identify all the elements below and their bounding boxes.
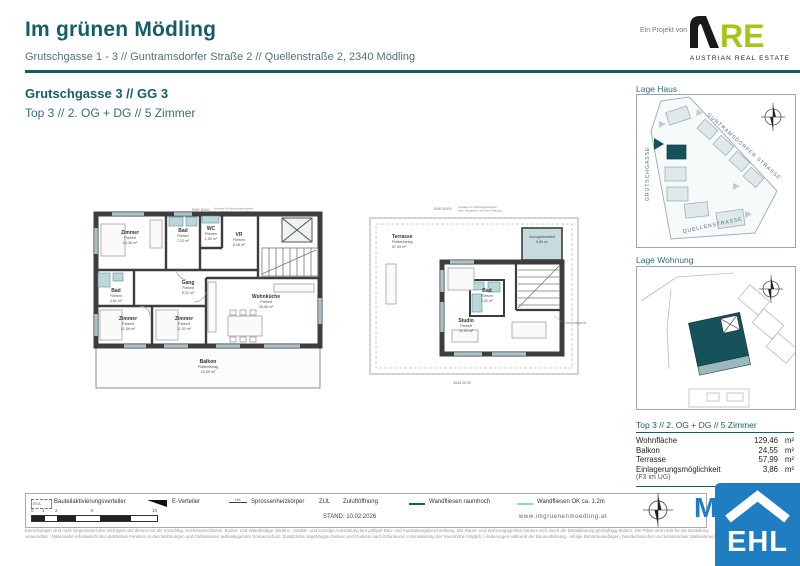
zul-abbr: ZUL (319, 499, 330, 505)
are-mark-icon (690, 16, 719, 48)
row-value: 57,99 (738, 455, 778, 465)
table-row: Terrasse 57,99 m² (636, 455, 794, 465)
svg-text:Parkett: Parkett (124, 236, 136, 240)
wandfliesen-raumhoch-label: Wandfliesen raumhoch (429, 499, 490, 505)
page-title: Im grünen Mödling (25, 18, 216, 42)
scale-tick: 1 (42, 508, 45, 513)
row-value: 24,55 (738, 446, 778, 456)
scale-bar (31, 515, 158, 522)
svg-text:32,93 m²: 32,93 m² (459, 329, 474, 333)
og-elevator (282, 218, 312, 242)
row-unit: m² (778, 465, 794, 475)
svg-text:28,08 m²: 28,08 m² (259, 305, 274, 309)
row-label: Einlagerungsmöglichkeit (636, 465, 738, 475)
svg-text:24,55 m²: 24,55 m² (201, 370, 216, 374)
wandfliesen-raumhoch-icon (409, 503, 425, 505)
row-label: Balkon (636, 446, 738, 456)
scale-tick: 0 (31, 508, 34, 513)
are-logo: RE AUSTRIAN REAL ESTATE (688, 14, 794, 69)
svg-text:Fliesen: Fliesen (481, 294, 493, 298)
ehl-roof-icon (715, 483, 800, 525)
heizkoerper-icon: HK (229, 497, 247, 503)
table-row: Balkon 24,55 m² (636, 446, 794, 456)
svg-text:Fliesen: Fliesen (110, 294, 122, 298)
table-header: Top 3 // 2. OG + DG // 5 Zimmer (636, 420, 794, 430)
ehl-logo: EHL (715, 483, 800, 566)
table-divider-top (636, 432, 794, 433)
lage-haus-label: Lage Haus (636, 84, 677, 94)
heizkoerper-label: Sprossenheizkörper (251, 499, 304, 505)
svg-text:9,32 m²: 9,32 m² (182, 291, 195, 295)
svg-text:Parkett: Parkett (122, 322, 134, 326)
svg-text:11,88 m²: 11,88 m² (121, 327, 136, 331)
e-verteiler-icon (147, 500, 167, 507)
wandfliesen-ok-label: Wandfliesen OK ca. 1.2m (537, 499, 605, 505)
svg-text:4,81 m²: 4,81 m² (110, 299, 123, 303)
scale-tick: 5 (91, 508, 94, 513)
lage-haus-map: GUNTRAMSDORFER STRASSE GRUTSCHGASSE QUEL… (636, 94, 796, 248)
svg-text:Parkett: Parkett (460, 324, 472, 328)
wandfliesen-ok-icon (517, 503, 533, 505)
street-grutschgasse: GRUTSCHGASSE (645, 147, 651, 201)
website-link[interactable]: www.imgruenenmoedling.at (519, 514, 607, 520)
table-row: Einlagerungsmöglichkeit 3,86 m² (636, 465, 794, 475)
e-verteiler-label: E-Verteiler (172, 499, 200, 505)
lage-haus-graphic: GUNTRAMSDORFER STRASSE GRUTSCHGASSE QUEL… (637, 95, 795, 247)
stand-date: STAND: 10.02.2026 (323, 514, 376, 520)
page-subtitle: Grutschgasse 1 - 3 // Guntramsdorfer Str… (25, 51, 415, 63)
svg-text:Fliesen: Fliesen (205, 232, 217, 236)
svg-text:Fliesen: Fliesen (177, 234, 189, 238)
svg-text:Plattenbelag: Plattenbelag (198, 365, 219, 369)
lage-wohnung-label: Lage Wohnung (636, 255, 694, 265)
svg-text:Fliesen: Fliesen (233, 238, 245, 242)
svg-text:1,50 m²: 1,50 m² (205, 237, 218, 241)
dg-note-line2: über Steigleiter mit fixer Führung (458, 209, 502, 213)
svg-text:6,38 m²: 6,38 m² (233, 243, 246, 247)
m-watermark: M (694, 492, 717, 524)
highlight-unit-building (689, 313, 751, 376)
row-value: 3,86 (738, 465, 778, 475)
legend-box: BTA Bauteilaktivierungsverteiler E-Verte… (25, 493, 707, 528)
svg-text:Aufzugsüberfahrt: Aufzugsüberfahrt (529, 235, 555, 239)
svg-text:Parkett: Parkett (182, 286, 194, 290)
disclaimer-line-1: Einrichtungen sind nicht Gegenstand des … (25, 528, 795, 533)
zul-label: Zuluftöffnung (343, 499, 378, 505)
dg-elevator-overrun (522, 228, 562, 260)
unit-subtitle: Top 3 // 2. OG + DG // 5 Zimmer (25, 106, 195, 120)
floorplan-og: RAR Ø100 Auslass für Wartungsarbeiten üb… (88, 206, 328, 403)
svg-text:Plattenbelag: Plattenbelag (392, 240, 413, 244)
header-divider (25, 70, 800, 73)
row-unit: m² (778, 446, 794, 456)
table-note: (F3 im UG) (636, 474, 671, 481)
compass-icon (759, 275, 783, 303)
svg-text:7,23 m²: 7,23 m² (177, 239, 190, 243)
row-label: Terrasse (636, 455, 738, 465)
compass-icon (638, 490, 678, 530)
scale-segment (100, 516, 131, 521)
scale-tick: 10 (152, 508, 157, 513)
building-title: Grutschgasse 3 // GG 3 (25, 86, 168, 101)
lage-wohnung-graphic (637, 267, 795, 409)
brochure-page: Im grünen Mödling Grutschgasse 1 - 3 // … (0, 0, 800, 566)
row-value: 129,46 (738, 436, 778, 446)
are-tagline: AUSTRIAN REAL ESTATE (690, 55, 790, 62)
lage-wohnung-map (636, 266, 796, 410)
ehl-logo-text: EHL (715, 526, 800, 559)
area-table: Wohnfläche 129,46 m² Balkon 24,55 m² Ter… (636, 436, 794, 474)
floorplan-og-drawing: RAR Ø100 Auslass für Wartungsarbeiten üb… (88, 206, 328, 398)
floorplan-dg-drawing: RAR Ø100 Auslass für Wartungsarbeiten üb… (366, 204, 596, 392)
disclaimer-line-2: verwendbar - Naturmaße erforderlich! Bei… (25, 534, 795, 539)
site-highlight-building (667, 145, 686, 159)
project-of-label: Ein Projekt von (640, 27, 687, 34)
row-unit: m² (778, 436, 794, 446)
floorplan-dg: RAR Ø100 Auslass für Wartungsarbeiten üb… (366, 204, 596, 397)
scale-segment (57, 516, 76, 521)
scale-tick: 2 (55, 508, 58, 513)
svg-text:Parkett: Parkett (178, 322, 190, 326)
compass-icon (761, 103, 785, 131)
svg-text:15,38 m²: 15,38 m² (123, 241, 138, 245)
table-row: Wohnfläche 129,46 m² (636, 436, 794, 446)
dg-unit-annotation: Kompaktgerät (565, 321, 586, 325)
dg-rar-annotation: RAR Ø100 (434, 207, 451, 211)
row-unit: m² (778, 455, 794, 465)
scale-segment (32, 516, 45, 521)
are-re-text: RE (720, 18, 764, 54)
og-rar-annotation: RAR Ø100 (192, 208, 209, 212)
svg-text:57,99 m²: 57,99 m² (392, 245, 407, 249)
bta-label: Bauteilaktivierungsverteiler (54, 499, 126, 505)
svg-text:5,56 m²: 5,56 m² (536, 240, 548, 244)
dg-dim-annotation: 5645 Ø100 (453, 381, 471, 385)
svg-text:5,32 m²: 5,32 m² (481, 299, 494, 303)
row-label: Wohnfläche (636, 436, 738, 446)
svg-text:Parkett: Parkett (260, 300, 272, 304)
svg-text:11,52 m²: 11,52 m² (177, 327, 192, 331)
are-logo-graphic: RE AUSTRIAN REAL ESTATE (688, 14, 794, 64)
